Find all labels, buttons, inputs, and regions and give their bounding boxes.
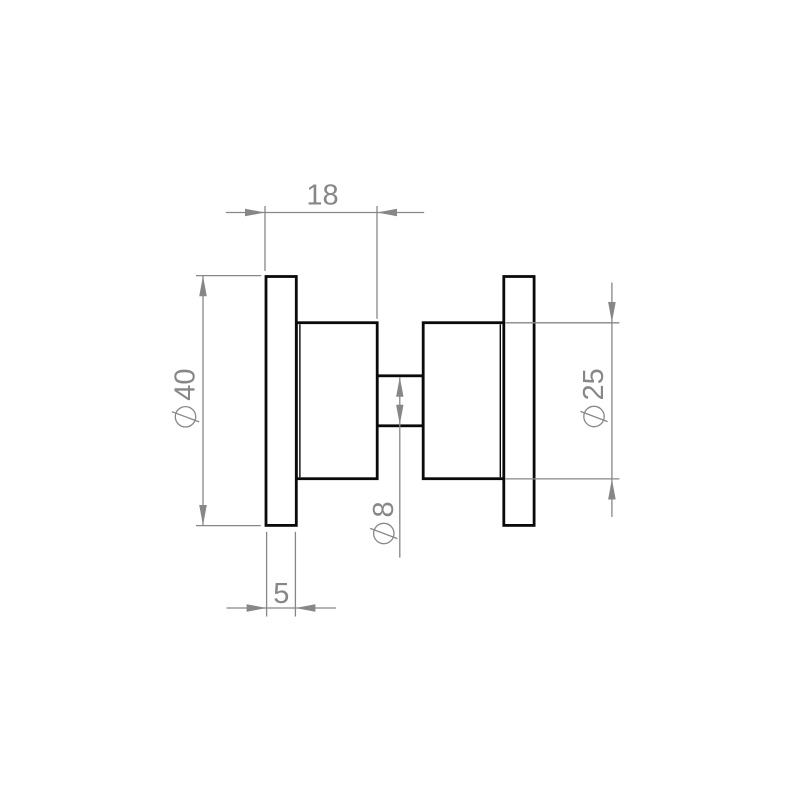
svg-text:5: 5 xyxy=(273,578,289,610)
svg-text:8: 8 xyxy=(368,501,400,517)
svg-text:40: 40 xyxy=(170,369,202,401)
svg-text:18: 18 xyxy=(306,180,338,212)
svg-text:25: 25 xyxy=(578,368,610,400)
